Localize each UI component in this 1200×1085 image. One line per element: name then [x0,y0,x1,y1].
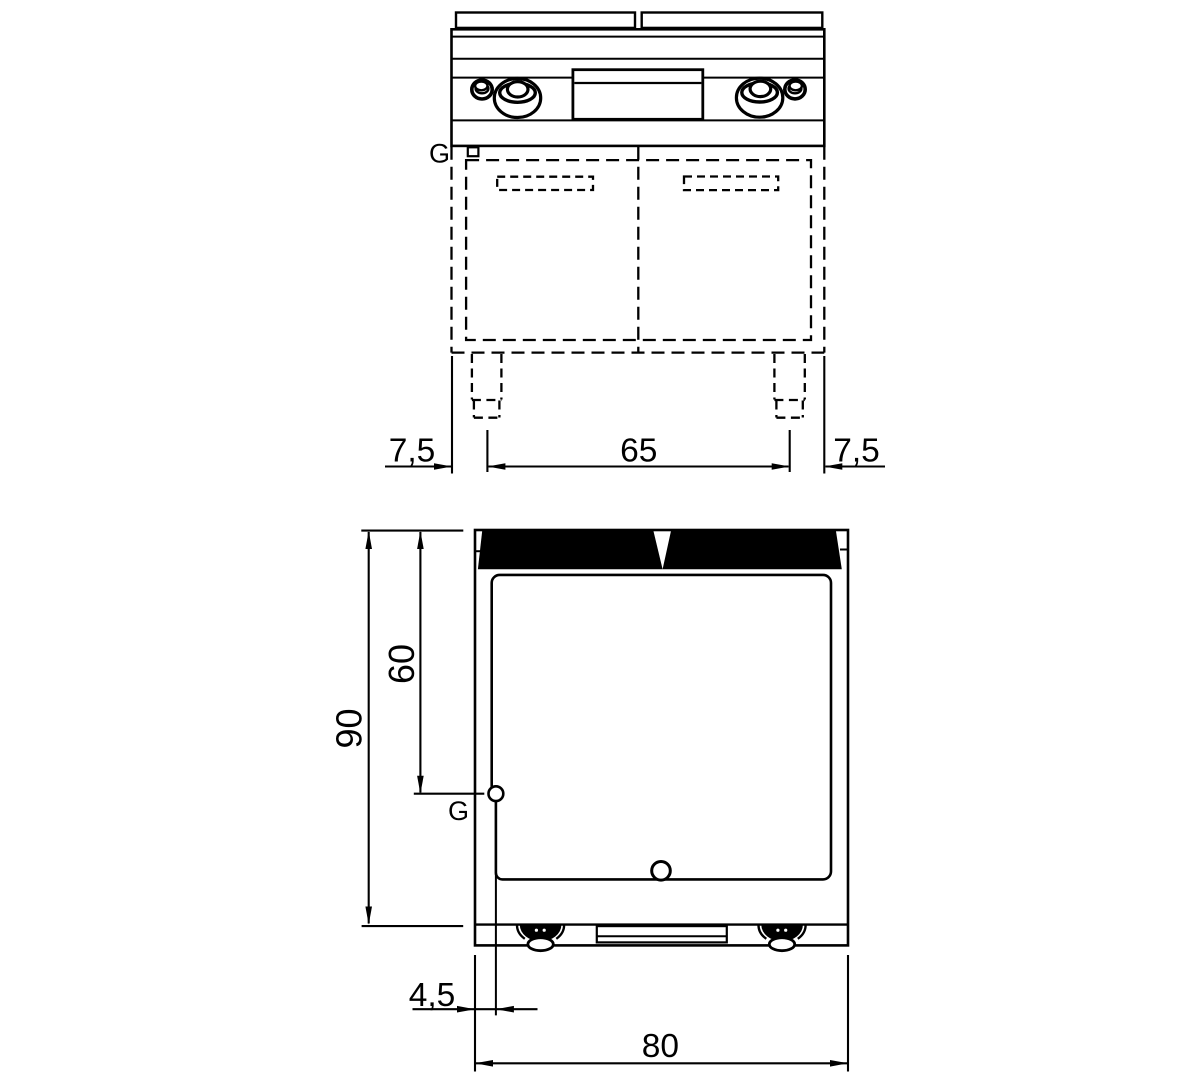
svg-text:60: 60 [381,644,422,684]
svg-text:G: G [429,139,450,169]
svg-text:90: 90 [329,708,370,748]
svg-text:7,5: 7,5 [833,433,880,470]
svg-text:G: G [448,796,469,826]
svg-text:65: 65 [620,433,657,470]
svg-text:80: 80 [642,1028,679,1065]
svg-text:7,5: 7,5 [389,433,436,470]
svg-text:4,5: 4,5 [409,977,456,1014]
